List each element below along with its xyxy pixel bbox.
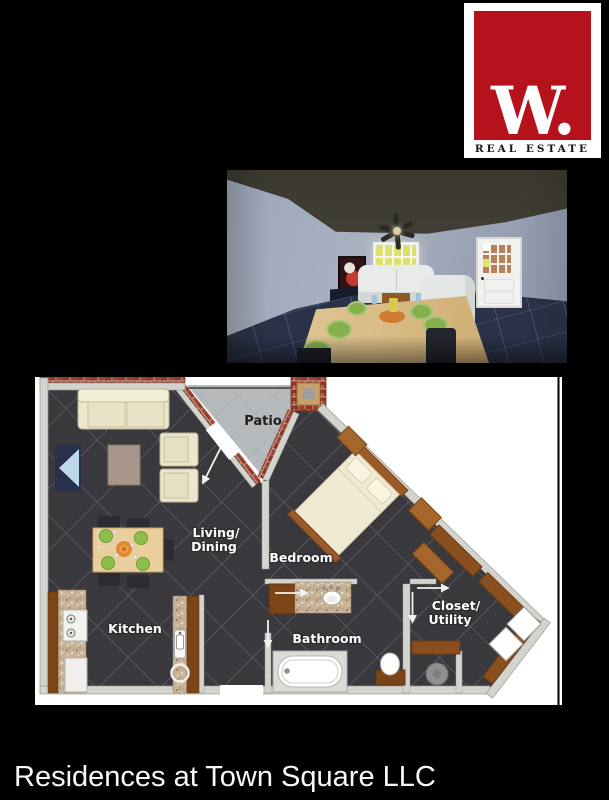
render-door-panel [484, 279, 514, 291]
label-living-1: Living/ [192, 525, 240, 540]
property-title: Residences at Town Square LLC [14, 761, 436, 794]
render-dining-chair [426, 328, 456, 363]
coffee-table [108, 445, 140, 485]
render-plate [326, 320, 352, 339]
render-glass [416, 293, 421, 302]
render-door-panel [484, 292, 514, 304]
floorplan-svg: Patio Living/ Dining Bedroom Kitchen Bat… [35, 377, 562, 705]
toilet [381, 653, 400, 675]
bottom-door-opening [220, 685, 263, 696]
label-bedroom: Bedroom [269, 550, 332, 565]
plan-sheet-edge [558, 377, 560, 705]
armchair [160, 433, 198, 466]
floorplan: Patio Living/ Dining Bedroom Kitchen Bat… [35, 377, 562, 705]
flyer-canvas: W. REAL ESTATE [0, 0, 609, 800]
label-closet-2: Utility [428, 612, 471, 627]
render-glass [372, 295, 377, 304]
label-bathroom: Bathroom [292, 631, 361, 646]
fan-light [393, 227, 401, 235]
logo-tagline: REAL ESTATE [464, 143, 601, 155]
label-patio: Patio [244, 414, 282, 429]
render-door-pane-yellow [483, 259, 490, 267]
render-door-pane-white [483, 243, 490, 251]
brand-logo: W. REAL ESTATE [464, 3, 601, 158]
render-cup [389, 298, 398, 312]
ceiling-fan-icon [377, 214, 417, 250]
label-living-2: Dining [191, 539, 237, 554]
render-plate [347, 301, 367, 316]
render-sofa-cushion-split [396, 269, 397, 291]
tv [55, 445, 81, 491]
render-back-door [476, 237, 522, 308]
stove [63, 610, 87, 641]
logo-monogram: W. [491, 82, 574, 140]
sofa [78, 389, 169, 429]
render-dining-chair [297, 348, 331, 363]
label-closet-1: Closet/ [432, 598, 481, 613]
interior-photo [227, 170, 567, 363]
label-kitchen: Kitchen [108, 621, 162, 636]
logo-red-box: W. [474, 11, 591, 140]
armchair [160, 469, 198, 502]
